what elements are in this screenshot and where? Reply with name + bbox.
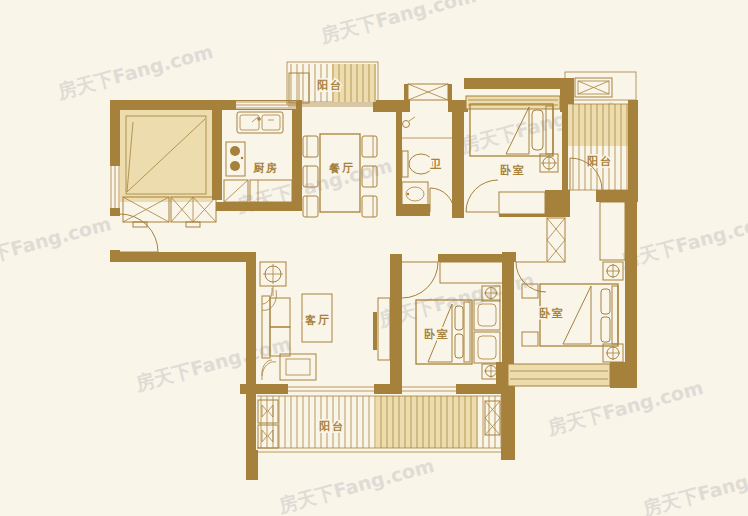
shaded-room [120, 110, 212, 202]
bath-label: 卫 [430, 158, 444, 171]
bedroom-middle-label: 卧室 [424, 328, 450, 341]
floor-plan: 房天下Fang.com 房天下Fang.com 房天下Fang.com 房天下F… [0, 0, 748, 516]
dining-label: 餐厅 [328, 162, 355, 175]
bedroom-master-label: 卧室 [539, 307, 565, 320]
kitchen-label: 厨房 [252, 162, 279, 175]
balcony-north-label: 阳台 [317, 79, 343, 92]
living-label: 客厅 [304, 314, 331, 327]
balcony-south-label: 阳台 [319, 420, 345, 433]
balcony-south: 阳台 [257, 396, 503, 452]
balcony-east: 阳台 [568, 104, 628, 190]
balcony-north: 阳台 [287, 62, 378, 104]
bedroom-north-label: 卧室 [500, 164, 526, 177]
